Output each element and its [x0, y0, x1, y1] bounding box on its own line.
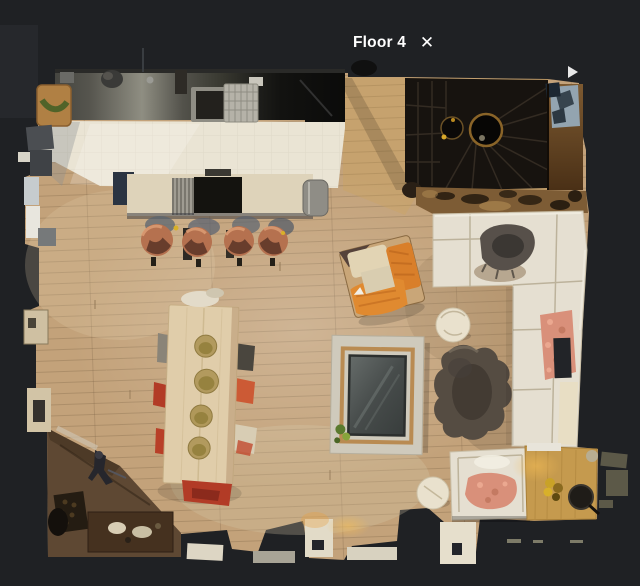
round-stool [417, 477, 450, 509]
trash-bin [303, 180, 328, 216]
counter-dark-item [351, 60, 377, 76]
spiral-stairwell [402, 78, 548, 198]
kitchen-counter [37, 48, 377, 126]
glass-fire-table [330, 335, 430, 455]
wall-shadow-block [0, 25, 38, 118]
dark-floor-object [48, 508, 68, 536]
cutting-board [37, 85, 71, 126]
close-button[interactable]: ✕ [415, 31, 439, 55]
floor-title: Floor 4 [353, 34, 406, 52]
kitchen-island [113, 169, 328, 219]
bottle [175, 70, 187, 94]
floorplan-viewer: Floor 4 ✕ [0, 0, 640, 586]
floorplan-image[interactable] [0, 25, 628, 564]
kitchen-sink [191, 87, 229, 122]
scan-marker [568, 66, 578, 78]
fur-throw [474, 224, 535, 282]
armchair-blanket [465, 473, 517, 509]
stair-center-post [470, 114, 502, 146]
floorplan-canvas[interactable] [0, 0, 640, 586]
bench [88, 512, 173, 552]
table-edge-highlight [527, 443, 561, 451]
scan-ghost-patches [599, 452, 628, 508]
cooktop [194, 177, 242, 213]
dish-rack [224, 84, 258, 122]
stair-wood-wall [545, 66, 583, 190]
counter-item [60, 72, 74, 83]
salmon-blanket [540, 310, 576, 380]
round-pouf [436, 308, 471, 342]
faucet [147, 77, 154, 84]
floor-strip-below-stairs [416, 187, 588, 214]
close-icon: ✕ [420, 33, 434, 52]
